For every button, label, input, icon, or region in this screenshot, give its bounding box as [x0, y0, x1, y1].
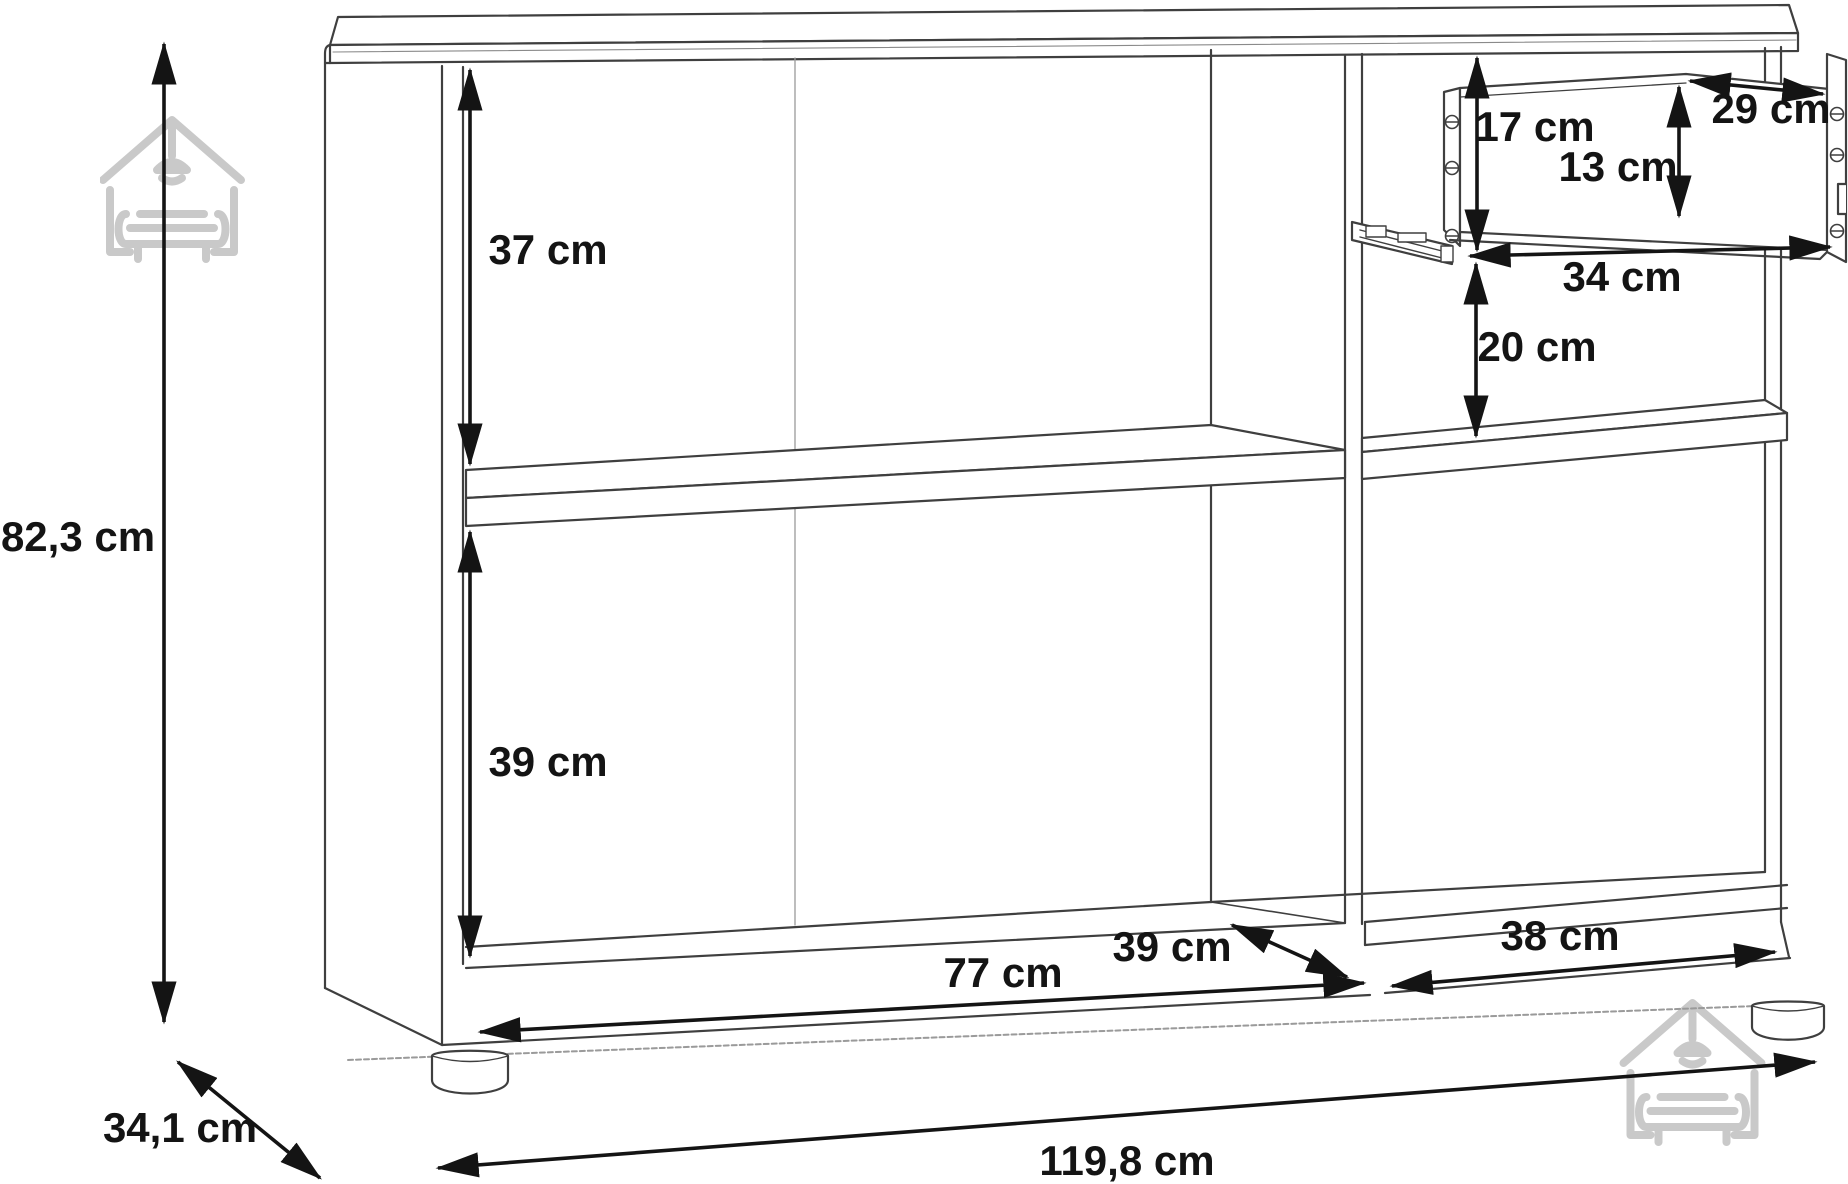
label-left-width: 77 cm: [943, 949, 1062, 996]
label-lower-left-height: 39 cm: [488, 738, 607, 785]
house-sofa-logo-top-left: [103, 120, 241, 259]
right-shelf: [1362, 400, 1787, 479]
label-drawer-width: 34 cm: [1562, 253, 1681, 300]
dimension-diagram: 82,3 cm 34,1 cm 119,8 cm 37 cm 39 cm 77 …: [0, 0, 1848, 1184]
left-foot: [432, 1051, 508, 1094]
left-shelf: [466, 425, 1345, 526]
arrow-compartment-depth: [1232, 925, 1347, 977]
label-overall-width: 119,8 cm: [1039, 1137, 1214, 1184]
label-overall-depth: 34,1 cm: [103, 1104, 257, 1151]
right-foot: [1752, 1002, 1824, 1040]
label-upper-left-height: 37 cm: [488, 226, 607, 273]
arrow-left-width: [480, 983, 1364, 1032]
drawer-front-notch: [1838, 184, 1846, 214]
left-panel-bottom-edge: [325, 988, 442, 1045]
label-drawer-inner-height: 13 cm: [1558, 143, 1677, 190]
label-below-drawer: 20 cm: [1477, 323, 1596, 370]
plinth-back-line: [348, 1005, 1782, 1060]
bottom-panel-back-edge-left: [466, 902, 1211, 947]
label-overall-height: 82,3 cm: [1, 513, 155, 560]
label-right-width: 38 cm: [1500, 912, 1619, 959]
right-panel-bottom-join: [1781, 922, 1789, 957]
label-drawer-depth: 29 cm: [1711, 85, 1830, 132]
label-compartment-depth: 39 cm: [1112, 923, 1231, 970]
right-floor-back-edge: [1211, 872, 1765, 902]
plinth-front-edge: [442, 958, 1790, 1045]
furniture-drawing-canvas: 82,3 cm 34,1 cm 119,8 cm 37 cm 39 cm 77 …: [0, 0, 1848, 1184]
divider-bottom-edge: [1211, 902, 1345, 923]
